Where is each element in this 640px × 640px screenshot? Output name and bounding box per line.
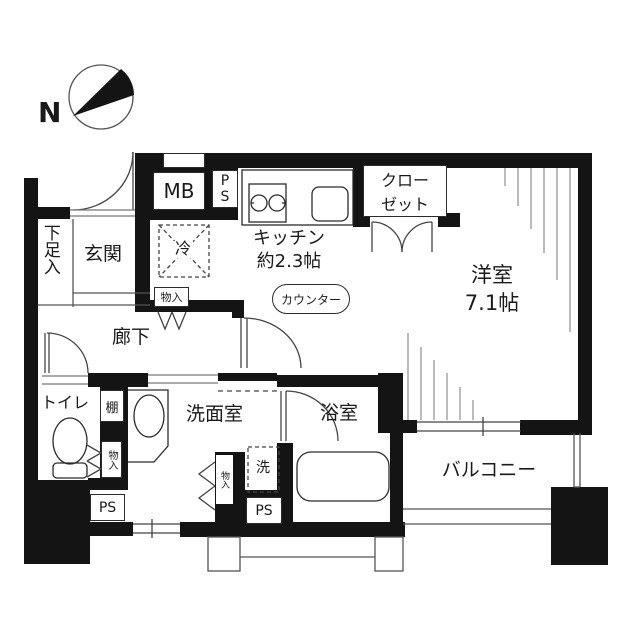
refrigerator-label: 冷 — [173, 241, 193, 258]
washbasin-sink — [134, 395, 164, 437]
counter-label: カウンター — [281, 291, 341, 308]
toilet-label: トイレ — [41, 395, 89, 412]
washroom-label: 洗面室 — [186, 405, 243, 425]
entrance-label: 玄関 — [84, 245, 122, 265]
shoe-cabinet-label: 下足入 — [40, 224, 58, 310]
entrance-door — [70, 152, 135, 216]
storage-washroom-door — [199, 462, 215, 510]
kitchen-size-label: 約2.3帖 — [238, 253, 340, 272]
balcony-window — [417, 417, 521, 436]
hallway-label: 廊下 — [112, 328, 150, 348]
balcony-label: バルコニー — [428, 461, 550, 481]
washer-label: 洗 — [256, 461, 270, 476]
storage-toilet-door — [87, 445, 101, 477]
closet-doors — [372, 222, 432, 252]
kitchen-name-label: キッチン — [238, 230, 340, 249]
toilet-fixture — [53, 418, 87, 478]
kitchen-sink — [312, 187, 348, 221]
hatch-lines-bottom-left — [408, 333, 473, 420]
washroom-window — [133, 519, 180, 538]
living-room-door — [241, 318, 301, 368]
compass-icon — [69, 65, 134, 129]
bathtub — [297, 452, 389, 501]
north-label: N — [38, 98, 61, 127]
floor-plan: MB PS クロー ゼット 物入 棚 物入 PS 物入 PS — [0, 0, 640, 640]
toilet-door — [42, 333, 88, 384]
foundation-columns — [208, 537, 403, 571]
counter-box: カウンター — [272, 284, 350, 314]
washroom-opening — [148, 375, 278, 391]
bathroom-label: 浴室 — [320, 404, 358, 424]
western-room-name-label: 洋室 — [442, 264, 542, 286]
kitchen-counter — [242, 170, 353, 225]
washbasin-counter — [128, 390, 168, 462]
storage-hallway-door — [158, 312, 186, 329]
western-room-size-label: 7.1帖 — [442, 292, 542, 314]
